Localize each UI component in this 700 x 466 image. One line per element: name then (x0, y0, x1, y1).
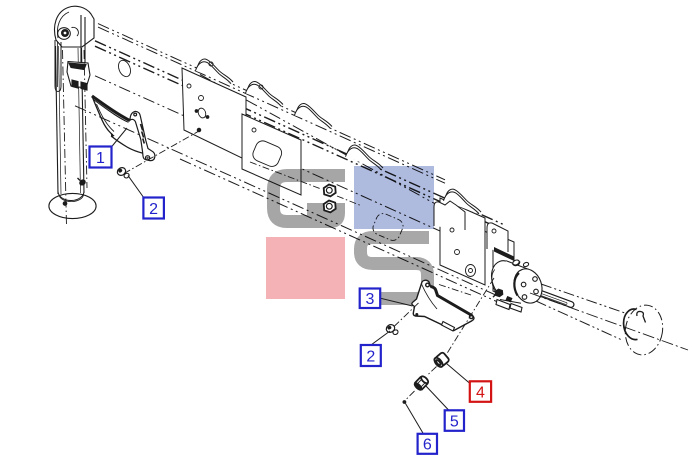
svg-text:6: 6 (423, 437, 432, 454)
svg-text:1: 1 (96, 150, 105, 167)
svg-text:3: 3 (366, 291, 375, 308)
svg-text:5: 5 (450, 414, 459, 431)
svg-text:2: 2 (149, 201, 158, 218)
svg-text:2: 2 (366, 348, 375, 365)
svg-text:4: 4 (476, 385, 485, 402)
